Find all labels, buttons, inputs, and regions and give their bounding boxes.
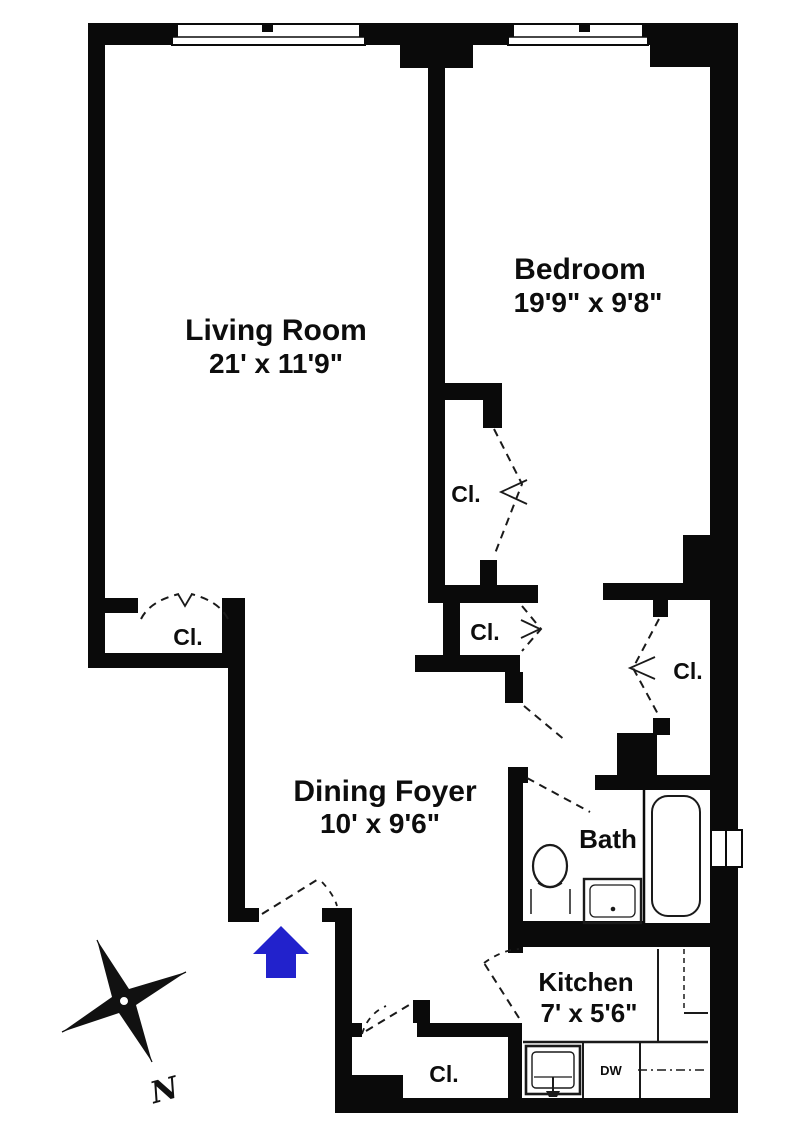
wall-segment xyxy=(480,560,497,585)
kitchen-dims: 7' x 5'6" xyxy=(541,998,638,1028)
dining-foyer-dims: 10' x 9'6" xyxy=(320,808,440,839)
wall-segment xyxy=(88,23,105,668)
compass-rose: N xyxy=(62,940,186,1112)
window-mullion xyxy=(262,23,273,32)
dining-foyer-name: Dining Foyer xyxy=(293,775,477,808)
living-room-name: Living Room xyxy=(185,314,367,347)
compass-center xyxy=(120,997,129,1006)
faucet-base xyxy=(546,1091,560,1097)
toilet xyxy=(531,845,570,914)
living-room-closet-label: Cl. xyxy=(173,624,202,650)
foyer-closet-label: Cl. xyxy=(429,1061,458,1087)
bathtub xyxy=(643,790,710,923)
wall-segment xyxy=(417,1023,522,1037)
wall-segment xyxy=(322,908,352,922)
bedroom-window xyxy=(508,23,648,45)
wall-segment xyxy=(428,68,445,603)
window-end-cap xyxy=(359,24,365,37)
foyer-closet-door xyxy=(362,1002,414,1034)
wall-segment xyxy=(710,23,738,1113)
window-end-cap xyxy=(172,24,178,37)
closet-door-meet xyxy=(178,594,192,606)
window-end-cap xyxy=(642,24,648,37)
bath-door-leaf xyxy=(527,778,590,812)
right-closet-label: Cl. xyxy=(673,658,702,684)
wall-segment xyxy=(440,383,502,400)
wall-segment xyxy=(653,600,668,617)
bedroom-closet-bifold-door xyxy=(494,429,527,556)
sink-basin xyxy=(590,885,635,917)
north-label: N xyxy=(146,1070,184,1112)
wall-segment xyxy=(443,585,538,603)
bifold-door-fold xyxy=(521,620,540,638)
wall-segment xyxy=(335,922,352,1113)
closet-door-leaf xyxy=(141,594,179,619)
wall-segment xyxy=(483,400,502,428)
hall-closet-bifold-door xyxy=(521,606,541,651)
right-closet-bifold-door xyxy=(630,619,659,716)
wall-segment xyxy=(400,45,473,68)
wall-segment xyxy=(683,535,710,600)
bath-window xyxy=(711,830,742,867)
hall-closet-label: Cl. xyxy=(470,619,499,645)
living-room-dims: 21' x 11'9" xyxy=(209,348,343,379)
wall-segment xyxy=(508,921,710,947)
wall-segment xyxy=(617,733,657,777)
entry-door-leaf xyxy=(262,878,320,914)
floorplan-svg: DW Living Room 21' x 11'9" Bedroom 19'9"… xyxy=(0,0,800,1148)
walls xyxy=(88,23,738,1113)
toilet-bowl xyxy=(533,845,567,887)
wall-segment xyxy=(508,767,528,783)
bifold-door-leaf xyxy=(494,429,522,556)
wall-segment xyxy=(415,655,520,672)
bedroom-closet-label: Cl. xyxy=(451,481,480,507)
kitchen-name: Kitchen xyxy=(538,967,633,997)
wall-segment xyxy=(228,668,245,922)
window-frame xyxy=(508,24,648,45)
wall-segment xyxy=(350,1075,403,1113)
living-room-closet-doors xyxy=(141,594,228,619)
wall-segment xyxy=(413,1000,430,1023)
dishwasher-label: DW xyxy=(600,1063,622,1078)
bifold-door-leaf xyxy=(633,619,659,716)
window-mullion xyxy=(579,23,590,32)
sink-drain xyxy=(611,907,616,912)
living-room-window xyxy=(172,23,365,45)
bedroom-name: Bedroom xyxy=(514,253,646,286)
wall-segment xyxy=(245,908,259,922)
bath-door xyxy=(524,706,590,812)
wall-segment xyxy=(105,598,138,613)
wall-segment xyxy=(603,583,683,600)
wall-segment xyxy=(335,1023,362,1037)
bath-name: Bath xyxy=(579,824,637,854)
bath-sink xyxy=(584,879,641,923)
kitchen-door-leaf xyxy=(484,963,519,1018)
wall-segment xyxy=(88,653,245,668)
bifold-door-fold xyxy=(501,480,527,504)
entry-arrow xyxy=(253,926,309,978)
entry-door-arc xyxy=(322,882,337,906)
bedroom-dims: 19'9" x 9'8" xyxy=(514,287,663,318)
wall-segment xyxy=(505,672,523,703)
bath-door-arc xyxy=(524,706,566,741)
wall-segment xyxy=(653,718,670,735)
kitchen-sink xyxy=(526,1046,580,1097)
wall-segment xyxy=(595,775,710,790)
kitchen-door xyxy=(484,949,519,1018)
bifold-door-fold xyxy=(630,657,655,679)
wall-segment xyxy=(222,598,245,653)
window-end-cap xyxy=(508,24,514,37)
closet-door-leaf xyxy=(366,1002,414,1031)
